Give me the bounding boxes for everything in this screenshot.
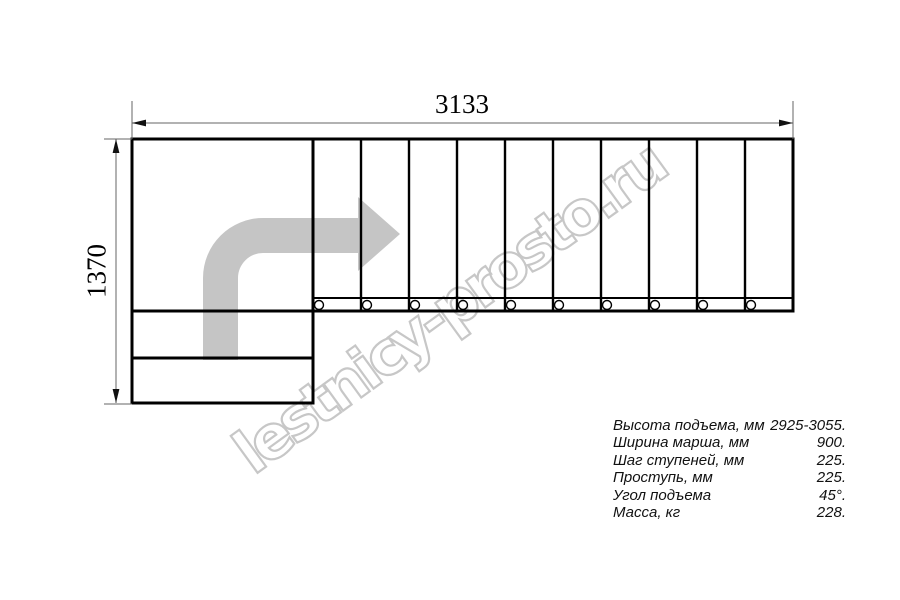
spec-value: 900. xyxy=(817,434,846,451)
baluster-circle xyxy=(555,301,564,310)
baluster-circle xyxy=(363,301,372,310)
spec-value: 2925-3055. xyxy=(770,417,846,434)
spec-label: Масса, кг xyxy=(613,504,680,521)
dim-height-label: 1370 xyxy=(84,244,111,298)
dim-arrow-right-icon xyxy=(779,120,793,127)
baluster-circle xyxy=(603,301,612,310)
spec-value: 225. xyxy=(817,452,846,469)
baluster-circle xyxy=(411,301,420,310)
spec-row: Угол подъема 45°. xyxy=(613,487,846,504)
baluster-circle xyxy=(699,301,708,310)
dim-width-label: 3133 xyxy=(435,91,489,118)
baluster-circle xyxy=(459,301,468,310)
baluster-circle xyxy=(747,301,756,310)
spec-label: Высота подъема, мм xyxy=(613,417,765,434)
spec-row: Ширина марша, мм 900. xyxy=(613,434,846,451)
spec-row: Масса, кг 228. xyxy=(613,504,846,521)
specs-table: Высота подъема, мм 2925-3055. Ширина мар… xyxy=(613,417,846,521)
baluster-circle xyxy=(507,301,516,310)
spec-row: Проступь, мм 225. xyxy=(613,469,846,486)
spec-value: 225. xyxy=(817,469,846,486)
stair-drawing-page: lestnicy-prosto.ru xyxy=(0,0,900,600)
spec-row: Высота подъема, мм 2925-3055. xyxy=(613,417,846,434)
dim-arrow-left-icon xyxy=(132,120,146,127)
baluster-circle xyxy=(315,301,324,310)
spec-value: 45°. xyxy=(819,487,846,504)
dim-arrow-bottom-icon xyxy=(113,389,120,403)
baluster-circle xyxy=(651,301,660,310)
dim-arrow-top-icon xyxy=(113,139,120,153)
spec-label: Проступь, мм xyxy=(613,469,713,486)
spec-row: Шаг ступеней, мм 225. xyxy=(613,452,846,469)
spec-value: 228. xyxy=(817,504,846,521)
spec-label: Ширина марша, мм xyxy=(613,434,749,451)
spec-label: Угол подъема xyxy=(613,487,711,504)
spec-label: Шаг ступеней, мм xyxy=(613,452,744,469)
